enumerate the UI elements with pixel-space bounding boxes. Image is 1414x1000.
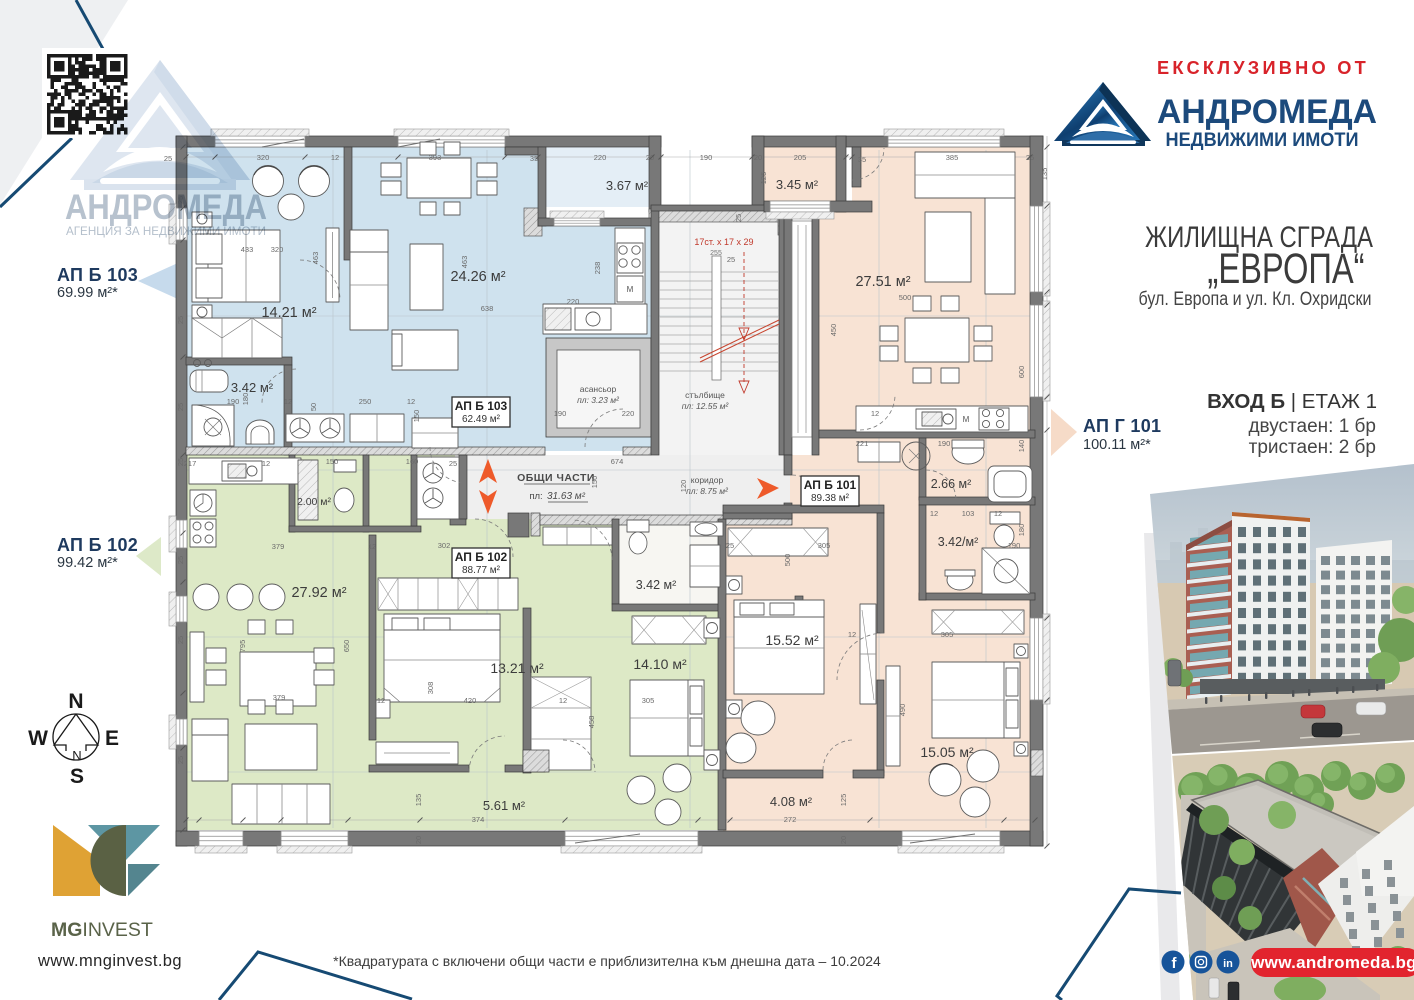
svg-text:272: 272	[784, 815, 797, 824]
svg-text:190: 190	[700, 153, 713, 162]
svg-text:25: 25	[176, 403, 185, 411]
svg-text:пл: 12.55 м²: пл: 12.55 м²	[682, 401, 730, 411]
svg-text:НЕДВИЖИМИ ИМОТИ: НЕДВИЖИМИ ИМОТИ	[1166, 130, 1359, 151]
svg-text:3.42 м²: 3.42 м²	[231, 380, 274, 395]
svg-text:99.42 м²*: 99.42 м²*	[57, 555, 118, 571]
svg-text:12: 12	[871, 409, 879, 418]
svg-text:12: 12	[377, 696, 385, 705]
svg-text:4.08 м²: 4.08 м²	[770, 794, 813, 809]
svg-text:255: 255	[710, 250, 722, 257]
svg-text:25: 25	[176, 316, 185, 324]
svg-text:220: 220	[567, 297, 580, 306]
svg-text:20: 20	[646, 153, 654, 162]
svg-text:795: 795	[238, 640, 247, 653]
svg-text:500: 500	[899, 293, 912, 302]
svg-text:15.05 м²: 15.05 м²	[920, 744, 974, 760]
svg-text:3.45 м²: 3.45 м²	[776, 177, 819, 192]
svg-text:420: 420	[464, 696, 477, 705]
svg-text:650: 650	[342, 640, 351, 653]
svg-text:ОБЩИ ЧАСТИ: ОБЩИ ЧАСТИ	[517, 472, 595, 484]
svg-text:220: 220	[622, 409, 635, 418]
svg-text:89.38 м²: 89.38 м²	[811, 493, 850, 504]
svg-text:М: М	[627, 285, 634, 294]
svg-text:103: 103	[962, 509, 975, 518]
svg-text:W: W	[28, 727, 48, 750]
svg-text:in: in	[1223, 958, 1233, 970]
svg-text:„ЕВРОПА“: „ЕВРОПА“	[1207, 245, 1364, 293]
svg-text:5.61 м²: 5.61 м²	[483, 798, 526, 813]
svg-text:25: 25	[727, 255, 735, 264]
svg-text:374: 374	[472, 815, 485, 824]
svg-text:2.00 м²: 2.00 м²	[297, 496, 332, 508]
svg-text:тристаен: 2 бр: тристаен: 2 бр	[1249, 437, 1376, 458]
svg-text:305: 305	[642, 696, 655, 705]
svg-text:13.21 м²: 13.21 м²	[490, 660, 544, 676]
svg-text:27.92 м²: 27.92 м²	[291, 585, 346, 601]
svg-text:180: 180	[1017, 524, 1026, 537]
svg-text:N: N	[72, 748, 81, 763]
svg-text:100.11 м²*: 100.11 м²*	[1083, 437, 1151, 453]
svg-text:88.77 м²: 88.77 м²	[462, 565, 501, 576]
svg-text:АП Б 102: АП Б 102	[57, 535, 138, 555]
svg-text:3.67 м²: 3.67 м²	[606, 178, 649, 193]
svg-text:125: 125	[759, 172, 768, 185]
svg-text:320: 320	[257, 153, 270, 162]
svg-text:АНДРОМЕДА: АНДРОМЕДА	[65, 188, 267, 227]
svg-text:www.andromeda.bg: www.andromeda.bg	[1250, 953, 1414, 972]
svg-text:125: 125	[839, 794, 848, 807]
svg-text:MGINVEST: MGINVEST	[51, 919, 153, 941]
svg-text:220: 220	[594, 153, 607, 162]
svg-text:35: 35	[858, 155, 866, 164]
svg-text:27.51 м²: 27.51 м²	[855, 274, 910, 290]
svg-text:490: 490	[898, 704, 907, 717]
svg-text:12: 12	[331, 153, 339, 162]
svg-text:463: 463	[460, 256, 469, 269]
svg-text:2.66 м²: 2.66 м²	[931, 477, 972, 491]
svg-text:320: 320	[271, 245, 284, 254]
svg-text:12: 12	[930, 509, 938, 518]
svg-text:393: 393	[429, 153, 442, 162]
svg-text:25: 25	[449, 459, 457, 468]
svg-text:12: 12	[994, 509, 1002, 518]
svg-text:14.21 м²: 14.21 м²	[261, 305, 316, 321]
svg-text:463: 463	[311, 252, 320, 265]
svg-text:379: 379	[272, 542, 285, 551]
svg-text:www.mnginvest.bg: www.mnginvest.bg	[37, 952, 182, 970]
svg-text:305: 305	[941, 630, 954, 639]
svg-text:17ст. x 17 x 29: 17ст. x 17 x 29	[694, 237, 753, 247]
svg-text:асансьор: асансьор	[580, 384, 617, 394]
svg-text:150: 150	[412, 410, 421, 423]
svg-text:24.26 м²: 24.26 м²	[450, 269, 505, 285]
svg-text:500: 500	[783, 554, 792, 567]
svg-text:160: 160	[406, 457, 419, 466]
svg-text:190: 190	[554, 409, 567, 418]
svg-text:238: 238	[593, 262, 602, 275]
svg-text:25: 25	[734, 214, 743, 222]
svg-text:217: 217	[184, 459, 197, 468]
svg-text:20: 20	[839, 836, 848, 844]
svg-text:308: 308	[426, 682, 435, 695]
svg-text:120: 120	[679, 480, 688, 493]
svg-text:221: 221	[856, 439, 869, 448]
svg-text:25: 25	[176, 756, 185, 764]
svg-text:305: 305	[818, 541, 831, 550]
svg-text:135: 135	[1040, 168, 1049, 181]
svg-text:458: 458	[587, 716, 596, 729]
svg-text:15.52 м²: 15.52 м²	[765, 632, 819, 648]
svg-text:50: 50	[309, 403, 318, 411]
svg-text:25: 25	[726, 541, 734, 550]
svg-text:190: 190	[227, 397, 240, 406]
svg-text:N: N	[68, 690, 83, 713]
svg-text:АГЕНЦИЯ ЗА НЕДВИЖИМИ ИМОТИ: АГЕНЦИЯ ЗА НЕДВИЖИМИ ИМОТИ	[66, 224, 266, 238]
svg-text:14.10 м²: 14.10 м²	[633, 656, 687, 672]
svg-text:12: 12	[559, 696, 567, 705]
svg-text:20: 20	[754, 153, 762, 162]
svg-text:S: S	[70, 765, 84, 788]
svg-text:62.49 м²: 62.49 м²	[462, 414, 501, 425]
svg-text:135: 135	[414, 794, 423, 807]
svg-text:12: 12	[368, 542, 376, 551]
svg-text:140: 140	[1017, 440, 1026, 453]
svg-text:АП Г 101: АП Г 101	[1083, 416, 1161, 436]
svg-text:12: 12	[848, 630, 856, 639]
svg-text:150: 150	[590, 476, 599, 489]
svg-text:69.99 м²*: 69.99 м²*	[57, 285, 118, 301]
svg-text:E: E	[105, 727, 119, 750]
svg-text:385: 385	[946, 153, 959, 162]
svg-text:205: 205	[794, 153, 807, 162]
svg-text:3.42/м²: 3.42/м²	[938, 535, 979, 549]
svg-text:3.42 м²: 3.42 м²	[636, 578, 677, 592]
svg-text:433: 433	[241, 245, 254, 254]
svg-text:180: 180	[241, 393, 250, 406]
svg-text:12: 12	[262, 459, 270, 468]
svg-text:674: 674	[611, 457, 624, 466]
svg-text:ЕКСКЛУЗИВНО ОТ: ЕКСКЛУЗИВНО ОТ	[1157, 58, 1369, 78]
svg-text:двустаен: 1 бр: двустаен: 1 бр	[1248, 416, 1376, 437]
svg-text:АП Б 102: АП Б 102	[455, 550, 508, 564]
svg-text:379: 379	[273, 693, 286, 702]
svg-text:бул. Европа и ул. Кл. Охридски: бул. Европа и ул. Кл. Охридски	[1139, 289, 1372, 310]
svg-text:ВХОД Б | ЕТАЖ 1: ВХОД Б | ЕТАЖ 1	[1207, 390, 1377, 413]
svg-text:638: 638	[481, 304, 494, 313]
svg-text:302: 302	[438, 541, 451, 550]
svg-text:190: 190	[1008, 541, 1021, 550]
svg-text:пл: 8.75 м²: пл: 8.75 м²	[686, 486, 729, 496]
svg-text:20: 20	[414, 836, 423, 844]
svg-text:АП Б 103: АП Б 103	[57, 265, 138, 285]
svg-text:250: 250	[359, 397, 372, 406]
svg-text:АП Б 103: АП Б 103	[455, 399, 508, 413]
svg-text:12: 12	[284, 397, 292, 406]
svg-text:АНДРОМЕДА: АНДРОМЕДА	[1157, 93, 1377, 131]
svg-text:450: 450	[829, 324, 838, 337]
svg-text:пл: 3.23 м²: пл: 3.23 м²	[577, 395, 620, 405]
svg-text:пл:: пл:	[529, 491, 542, 502]
svg-text:190: 190	[938, 439, 951, 448]
svg-text:25: 25	[176, 636, 185, 644]
svg-text:*Квадратурата с включени общи: *Квадратурата с включени общи части е пр…	[333, 953, 881, 969]
svg-text:150: 150	[326, 457, 339, 466]
svg-text:стълбище: стълбище	[685, 390, 725, 400]
svg-text:коридор: коридор	[691, 475, 724, 485]
svg-text:31.63 м²: 31.63 м²	[547, 491, 586, 502]
svg-text:М: М	[963, 415, 970, 424]
svg-text:12: 12	[407, 397, 415, 406]
svg-text:25: 25	[176, 556, 185, 564]
svg-text:600: 600	[1017, 366, 1026, 379]
svg-text:АП Б 101: АП Б 101	[804, 478, 857, 492]
